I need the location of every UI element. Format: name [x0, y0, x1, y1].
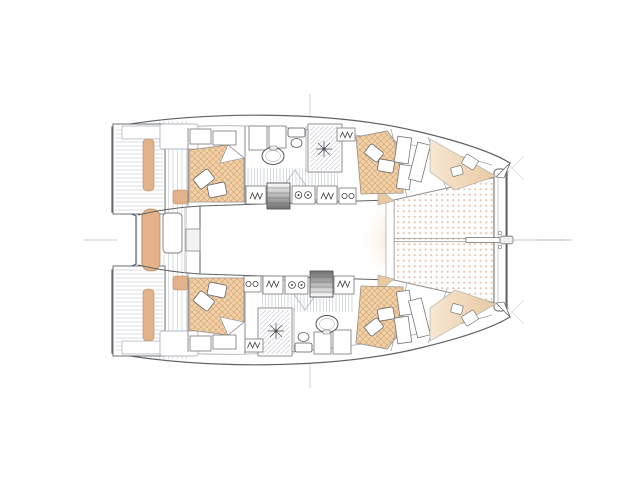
bath-counter	[269, 126, 286, 148]
shelf	[190, 129, 211, 144]
helm-seat-starboard	[173, 276, 188, 290]
bowsprit-fitting	[500, 236, 513, 244]
vent-grille-icon	[337, 128, 355, 141]
cockpit-bench-cushion	[142, 209, 160, 271]
cockpit-table	[163, 213, 182, 253]
shelf	[213, 131, 236, 145]
platform-cushion	[143, 289, 154, 341]
transom-step	[122, 341, 165, 354]
swim-platform-starboard	[113, 266, 165, 356]
platform-cushion	[143, 139, 154, 191]
aft-cabin	[189, 129, 244, 202]
swim-platform-port	[113, 124, 165, 214]
bowsprit	[466, 238, 500, 243]
companionway-stairs	[267, 183, 290, 209]
helm-seat-port	[173, 190, 188, 204]
saloon-sliding-door	[186, 229, 200, 251]
shower-head-icon	[316, 141, 332, 157]
transom-step	[122, 126, 165, 139]
bath-counter	[249, 126, 267, 150]
catamaran-floorplan	[0, 0, 640, 480]
foredeck-strip	[386, 199, 394, 281]
pillow	[377, 159, 395, 174]
